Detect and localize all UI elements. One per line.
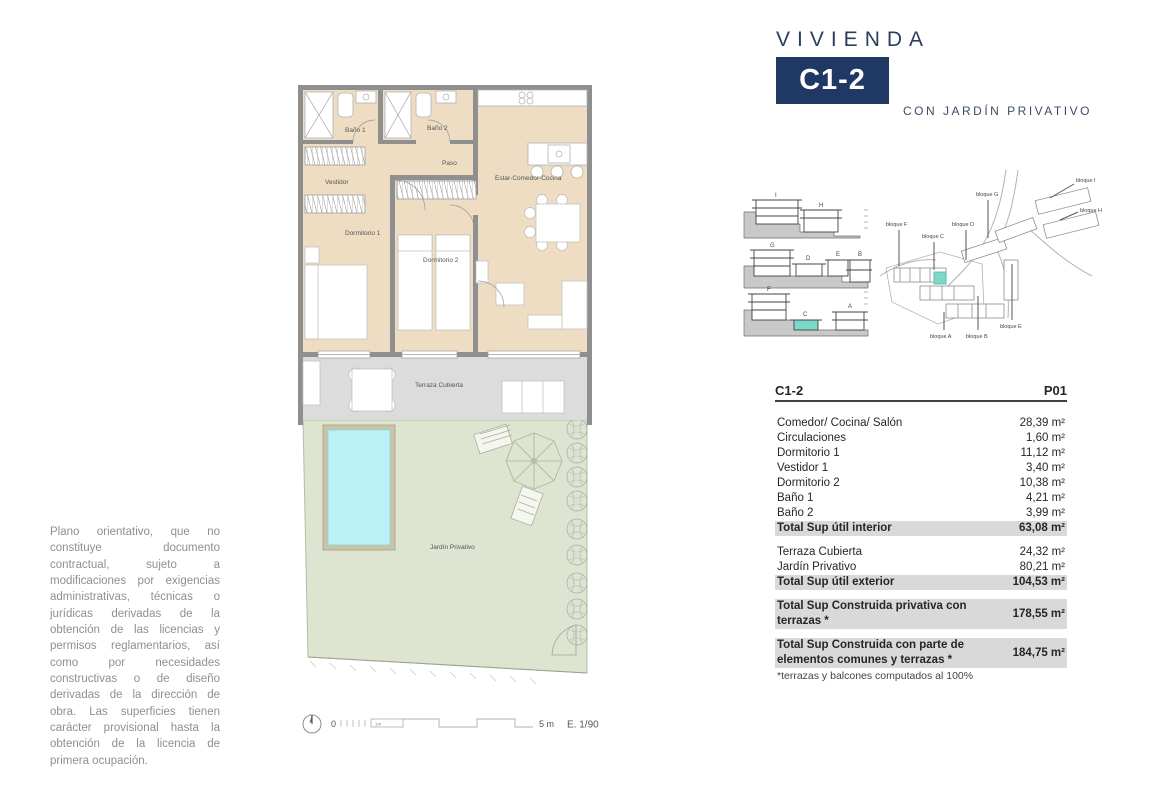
- scale-bar: 0 1m 5 m E. 1/90: [295, 706, 605, 742]
- table-row: Jardín Privativo80,21 m²: [775, 560, 1067, 575]
- total-label: Total Sup Construida con parte de elemen…: [777, 638, 1013, 668]
- siteplan-label-e: bloque E: [1000, 324, 1022, 330]
- block-sections-diagram: I H G D E B: [742, 188, 874, 338]
- table-spacer: [775, 629, 1067, 638]
- floorplan-drawing: Baño 1 Baño 2 Paso Vestidor Dormitorio 1…: [290, 85, 600, 693]
- table-row: Comedor/ Cocina/ Salón28,39 m²: [775, 416, 1067, 431]
- table-total-row: Total Sup útil exterior104,53 m²: [775, 575, 1067, 590]
- siteplan-label-c: bloque C: [922, 234, 944, 240]
- section-row-3: F C A: [744, 287, 868, 336]
- table-unit: C1-2: [775, 383, 803, 398]
- area-table-header: C1-2 P01: [775, 383, 1067, 402]
- row-label: Baño 2: [777, 506, 1026, 521]
- row-label: Vestidor 1: [777, 461, 1026, 476]
- section-block-label: F: [767, 287, 771, 293]
- dorm2-wardrobe: [397, 181, 476, 199]
- table-total-row: Total Sup Construida con parte de elemen…: [775, 638, 1067, 668]
- section-block-label: D: [806, 256, 811, 262]
- table-row: Vestidor 13,40 m²: [775, 461, 1067, 476]
- total-label: Total Sup útil interior: [777, 521, 1019, 536]
- room-label-dormitorio1: Dormitorio 1: [345, 230, 381, 237]
- siteplan-label-h: bloque H: [1080, 208, 1102, 214]
- total-label: Total Sup útil exterior: [777, 575, 1013, 590]
- scale-ratio: E. 1/90: [567, 720, 599, 731]
- total-value: 63,08 m²: [1019, 521, 1065, 536]
- page-subtitle: CON JARDÍN PRIVATIVO: [903, 104, 1092, 118]
- row-label: Comedor/ Cocina/ Salón: [777, 416, 1020, 431]
- scale-one-m: 1m: [375, 722, 382, 727]
- total-value: 184,75 m²: [1013, 646, 1065, 661]
- row-value: 3,99 m²: [1026, 506, 1065, 521]
- siteplan-label-i: bloque I: [1076, 178, 1096, 184]
- section-block-label: H: [819, 203, 823, 209]
- room-label-bano2: Baño 2: [427, 125, 448, 132]
- row-label: Baño 1: [777, 491, 1026, 506]
- windows: [318, 351, 580, 358]
- row-value: 11,12 m²: [1020, 446, 1065, 461]
- pool: [323, 425, 395, 550]
- row-label: Terraza Cubierta: [777, 545, 1020, 560]
- total-value: 178,55 m²: [1013, 607, 1065, 622]
- area-table: C1-2 P01 Comedor/ Cocina/ Salón28,39 m²C…: [775, 383, 1067, 682]
- table-row: Dormitorio 111,12 m²: [775, 446, 1067, 461]
- table-total-row: Total Sup útil interior63,08 m²: [775, 521, 1067, 536]
- page-title: VIVIENDA: [776, 28, 930, 52]
- row-label: Circulaciones: [777, 431, 1026, 446]
- row-label: Dormitorio 1: [777, 446, 1020, 461]
- table-row: Dormitorio 210,38 m²: [775, 476, 1067, 491]
- row-value: 24,32 m²: [1020, 545, 1065, 560]
- row-value: 28,39 m²: [1020, 416, 1065, 431]
- table-total-row: Total Sup Construida privativa con terra…: [775, 599, 1067, 629]
- room-label-paso: Paso: [442, 160, 457, 167]
- row-label: Dormitorio 2: [777, 476, 1020, 491]
- total-label: Total Sup Construida privativa con terra…: [777, 599, 1013, 629]
- row-value: 1,60 m²: [1026, 431, 1065, 446]
- room-label-estar: Estar-Comedor-Cocina: [495, 175, 562, 182]
- siteplan-label-g: bloque G: [976, 192, 998, 198]
- section-block-label: B: [858, 252, 862, 258]
- site-plan: bloque F bloque C bloque G bloque D bloq…: [878, 168, 1118, 346]
- table-floor: P01: [1044, 383, 1067, 398]
- section-block-label: E: [836, 252, 840, 258]
- room-label-bano1: Baño 1: [345, 127, 366, 134]
- siteplan-label-f: bloque F: [886, 222, 908, 228]
- area-table-body: Comedor/ Cocina/ Salón28,39 m²Circulacio…: [775, 416, 1067, 668]
- room-label-dormitorio2: Dormitorio 2: [423, 257, 459, 264]
- scale-five-m: 5 m: [539, 719, 554, 729]
- row-value: 3,40 m²: [1026, 461, 1065, 476]
- row-value: 4,21 m²: [1026, 491, 1065, 506]
- highlighted-unit: [934, 272, 946, 284]
- table-spacer: [775, 536, 1067, 545]
- room-label-vestidor: Vestidor: [325, 179, 349, 186]
- siteplan-label-d: bloque D: [952, 222, 974, 228]
- total-value: 104,53 m²: [1013, 575, 1065, 590]
- table-row: Terraza Cubierta24,32 m²: [775, 545, 1067, 560]
- row-value: 80,21 m²: [1020, 560, 1065, 575]
- scale-zero: 0: [331, 719, 336, 729]
- table-row: Baño 14,21 m²: [775, 491, 1067, 506]
- row-label: Jardín Privativo: [777, 560, 1020, 575]
- table-row: Circulaciones1,60 m²: [775, 431, 1067, 446]
- unit-code-badge: C1-2: [776, 57, 889, 104]
- unit-code: C1-2: [799, 64, 866, 97]
- table-spacer: [775, 590, 1067, 599]
- section-block-label: C: [803, 312, 808, 318]
- disclaimer-text: Plano orientativo, que no constituye doc…: [50, 524, 220, 769]
- row-value: 10,38 m²: [1020, 476, 1065, 491]
- table-note: *terrazas y balcones computados al 100%: [775, 670, 1067, 682]
- section-block-label: I: [775, 193, 777, 199]
- section-block-label: A: [848, 304, 852, 310]
- room-label-terraza: Terraza Cubierta: [415, 382, 463, 389]
- section-row-1: I H: [744, 193, 868, 238]
- north-compass-icon: [303, 715, 321, 733]
- siteplan-label-a: bloque A: [930, 334, 952, 340]
- siteplan-label-b: bloque B: [966, 334, 988, 340]
- section-row-2: G D E B: [744, 243, 872, 288]
- table-row: Baño 23,99 m²: [775, 506, 1067, 521]
- room-label-jardin: Jardín Privativo: [430, 544, 475, 551]
- umbrella-icon: [506, 433, 562, 489]
- plan-sheet: Plano orientativo, que no constituye doc…: [0, 0, 1170, 785]
- section-block-label: G: [770, 243, 775, 249]
